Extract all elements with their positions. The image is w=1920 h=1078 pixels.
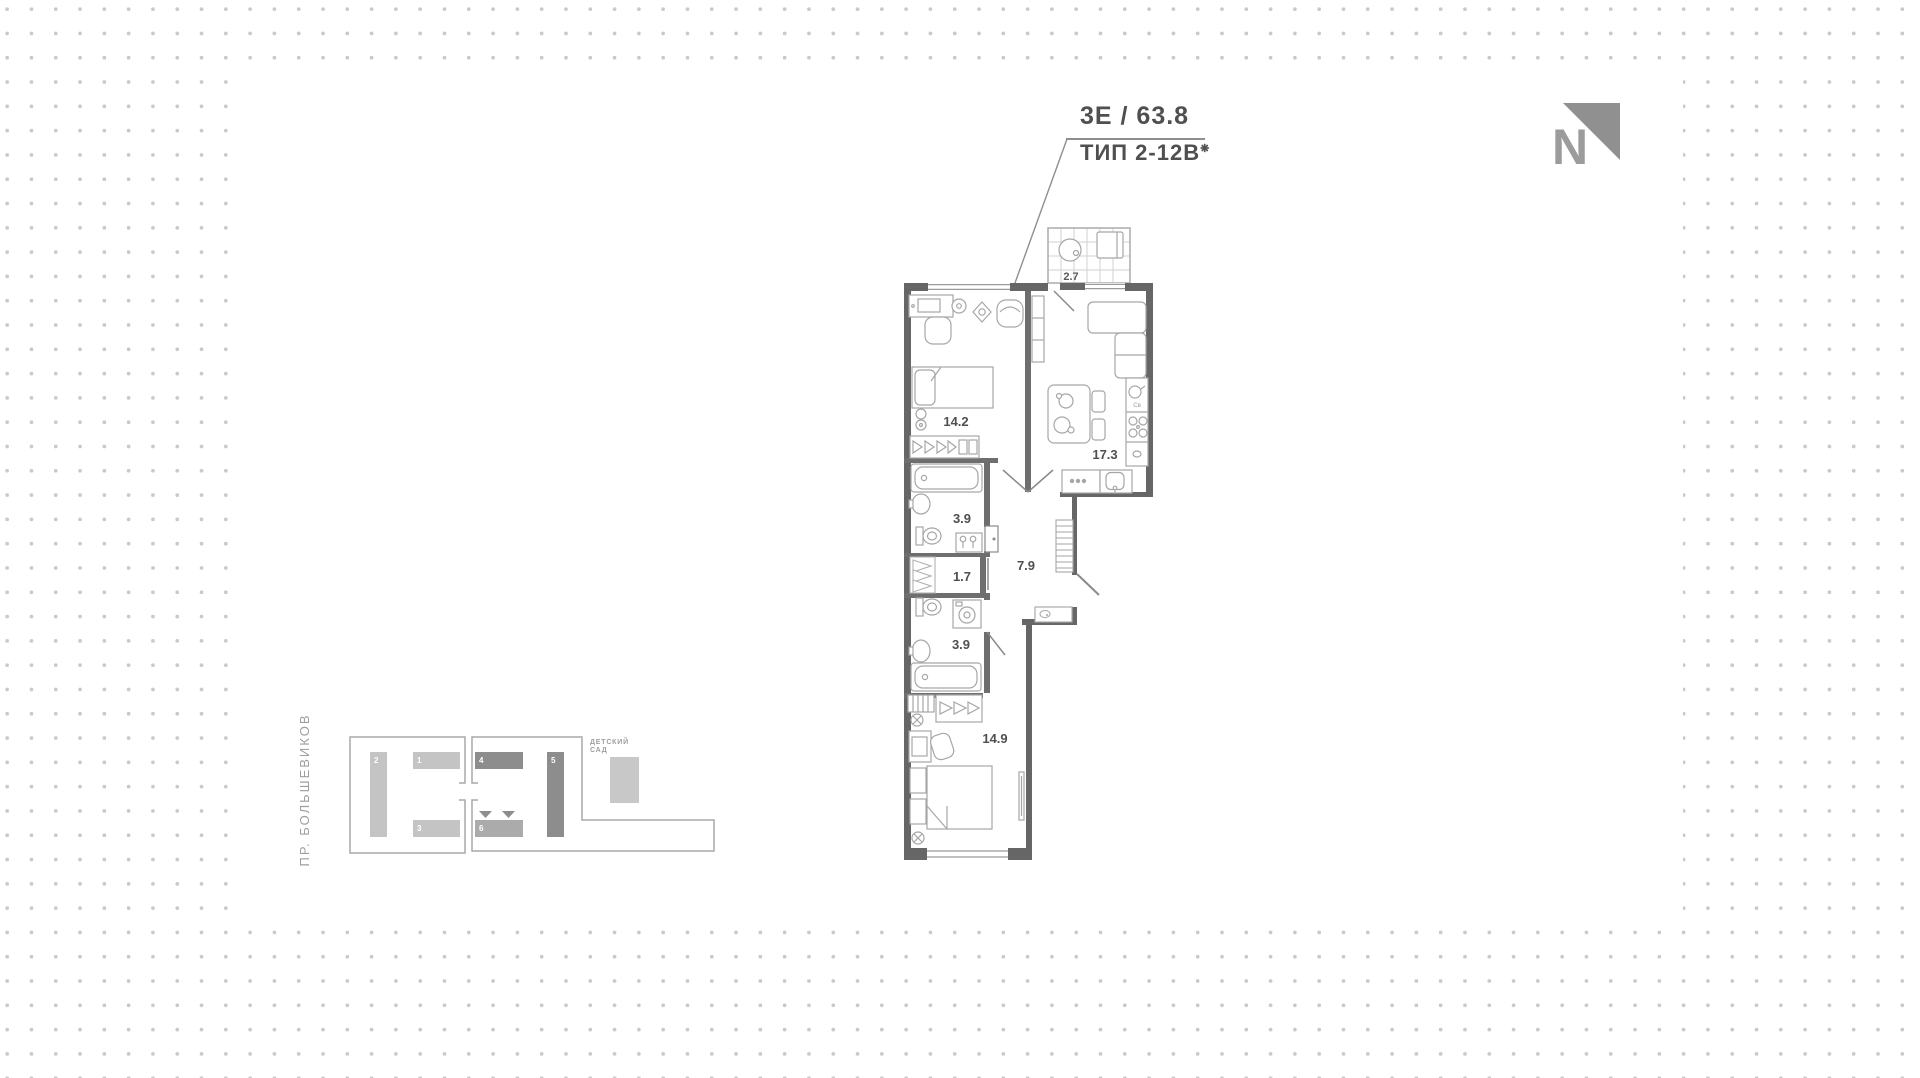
kettle-icon (1129, 386, 1141, 398)
toilet-icon (916, 598, 941, 616)
shelf-icon (908, 695, 934, 712)
window-bedroom-2 (927, 848, 1008, 860)
street-label: ПР. БОЛЬШЕВИКОВ (297, 713, 312, 866)
washing-machine-icon (953, 600, 981, 628)
window-kitchen (1085, 283, 1125, 290)
kitchen-counter-icon (1126, 378, 1148, 466)
balcony-bench-icon (1097, 232, 1123, 258)
dining-table-icon (1048, 385, 1105, 443)
leader-line (1015, 139, 1204, 283)
desk-icon (909, 295, 953, 317)
building-3-label: 3 (417, 824, 422, 833)
desk-icon (909, 731, 931, 762)
wardrobe-icon (910, 436, 979, 458)
room-label-kitchen-living: 17.3 (1092, 447, 1117, 462)
hallway-shelf-icon (1056, 520, 1073, 572)
vent-icon (916, 409, 926, 430)
lamp-icon (952, 299, 966, 313)
balcony-door-swing (1054, 291, 1074, 311)
cabinet-icon (956, 533, 982, 552)
building-4-label: 4 (479, 756, 484, 765)
vent-icon-2 (912, 832, 924, 844)
entrance-door-swing (1077, 574, 1099, 595)
floorplan-svg: 2.7 14.2 17.3 3.9 1.7 7.9 3.9 14.9 Св ПР… (0, 0, 1920, 1078)
vent-icon (911, 714, 923, 726)
room-label-balcony: 2.7 (1063, 271, 1078, 283)
bedroom-1-door-swing (1003, 470, 1028, 492)
room-label-bathroom-1: 3.9 (953, 511, 971, 526)
building-6-label: 6 (479, 824, 484, 833)
mirror-icon (1019, 772, 1024, 820)
building-5-label: 5 (551, 756, 556, 765)
room-label-hallway: 7.9 (1017, 558, 1035, 573)
wardrobe-icon (936, 695, 982, 722)
kindergarten-label-line1: ДЕТСКИЙ (590, 737, 629, 746)
window-bedroom-1 (928, 283, 1010, 291)
decor-icon (973, 302, 991, 322)
kindergarten: ДЕТСКИЙ САД (590, 737, 639, 803)
building-1-label: 1 (417, 756, 422, 765)
double-bed-icon (910, 766, 992, 829)
single-bed-icon (912, 367, 993, 408)
site-buildings: 1 2 3 4 5 6 (370, 752, 564, 837)
kindergarten-label-line2: САД (590, 747, 608, 754)
knob-icon (1133, 451, 1141, 457)
chair-icon (925, 317, 951, 344)
bathroom-2-fixtures (909, 598, 981, 691)
section-marker-icon (479, 811, 492, 818)
site-plan: ПР. БОЛЬШЕВИКОВ 1 2 3 4 5 6 ДЕТСКИЙ САД (297, 713, 714, 866)
storage-furniture (910, 557, 935, 593)
bathroom-1-fixtures (909, 464, 982, 552)
bathtub-icon (911, 464, 982, 492)
kitchen-lower-counter-icon (1062, 470, 1132, 494)
bathroom-1-door-leaf (985, 526, 998, 552)
sink-icon (909, 494, 930, 514)
section-marker-icon (502, 811, 515, 818)
balcony (1048, 228, 1130, 283)
balcony-table-icon (1059, 239, 1081, 261)
bedroom-1-furniture (909, 295, 1023, 458)
kindergarten-building (610, 757, 639, 803)
kitchen-door-swing (1028, 470, 1053, 492)
chair-icon (929, 731, 956, 761)
room-label-bedroom-1: 14.2 (943, 414, 968, 429)
appliance-micro-label: Св (1133, 403, 1141, 409)
sink-icon (909, 640, 930, 662)
toilet-icon (916, 527, 941, 545)
building-2-label: 2 (374, 756, 379, 765)
building-2 (370, 752, 387, 837)
bathtub-icon (911, 663, 981, 691)
building-5 (547, 752, 564, 837)
entrance-niche (1035, 607, 1072, 622)
tall-cabinet-icon (1032, 296, 1044, 362)
room-label-storage: 1.7 (953, 569, 971, 584)
bedroom-2-furniture (908, 695, 1024, 844)
armchair-icon (997, 300, 1023, 327)
room-label-bathroom-2: 3.9 (952, 637, 970, 652)
room-label-bedroom-2: 14.9 (982, 731, 1007, 746)
kitchen-furniture (1032, 296, 1148, 494)
sofa-icon (1088, 302, 1146, 378)
